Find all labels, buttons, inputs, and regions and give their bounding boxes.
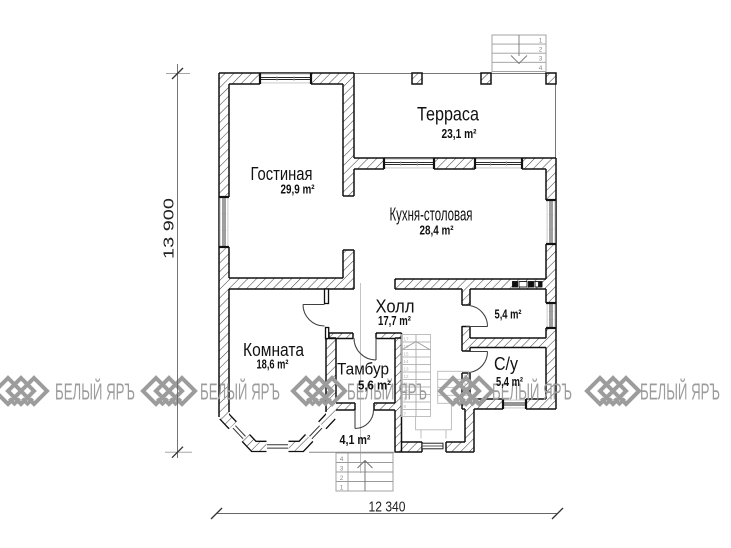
svg-text:13: 13 (404, 367, 410, 372)
svg-text:1: 1 (340, 485, 344, 492)
svg-text:Кухня-столовая: Кухня-столовая (390, 204, 473, 225)
svg-text:4,1 m²: 4,1 m² (340, 432, 371, 447)
svg-text:5,4 m²: 5,4 m² (495, 307, 522, 322)
svg-text:14: 14 (404, 359, 410, 364)
svg-text:13 900: 13 900 (162, 198, 178, 259)
svg-text:С/у: С/у (494, 353, 519, 374)
svg-text:3: 3 (340, 466, 344, 473)
svg-text:Тамбур: Тамбур (337, 360, 389, 379)
svg-text:17: 17 (404, 337, 410, 342)
svg-text:3: 3 (539, 56, 543, 63)
svg-text:5,4 m²: 5,4 m² (496, 374, 523, 389)
svg-text:23,1 m²: 23,1 m² (442, 126, 477, 141)
svg-text:1: 1 (539, 38, 543, 45)
svg-text:2: 2 (340, 475, 344, 482)
svg-text:28,4 m²: 28,4 m² (420, 223, 454, 238)
svg-text:Терраса: Терраса (417, 104, 479, 126)
svg-text:5,6 m²: 5,6 m² (358, 378, 391, 393)
svg-text:БЕЛЫЙ ЯРЪ: БЕЛЫЙ ЯРЪ (200, 378, 280, 405)
svg-text:4: 4 (539, 65, 543, 72)
svg-text:29,9 m²: 29,9 m² (281, 182, 315, 197)
svg-text:18,6 m²: 18,6 m² (257, 357, 289, 372)
svg-text:2: 2 (539, 47, 543, 54)
svg-text:4: 4 (340, 456, 344, 463)
svg-text:15: 15 (404, 352, 410, 357)
svg-text:БЕЛЫЙ ЯРЪ: БЕЛЫЙ ЯРЪ (55, 378, 135, 405)
svg-text:16: 16 (404, 344, 410, 349)
svg-text:БЕЛЫЙ ЯРЪ: БЕЛЫЙ ЯРЪ (640, 378, 720, 405)
svg-text:17,7 m²: 17,7 m² (378, 313, 411, 328)
svg-text:12 340: 12 340 (369, 500, 406, 516)
